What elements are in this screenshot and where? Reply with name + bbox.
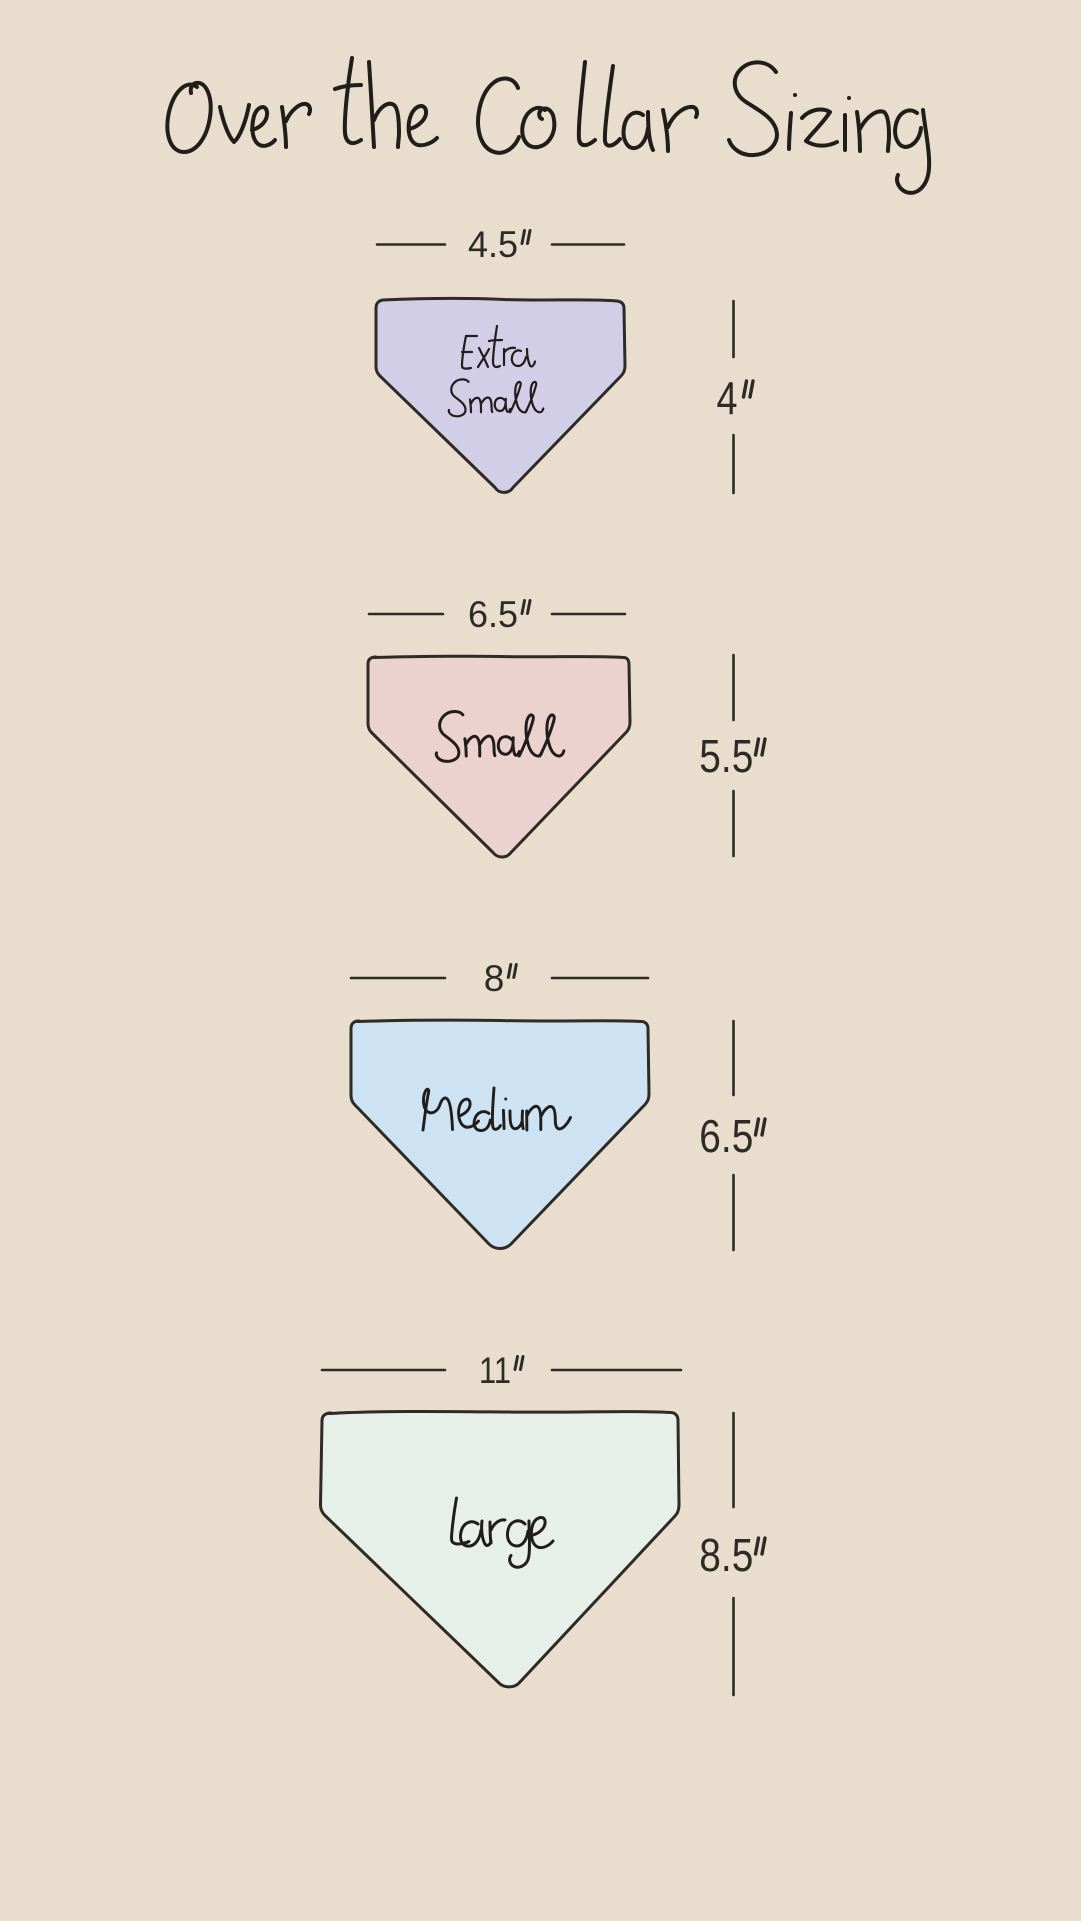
svg-text:6.5: 6.5 — [468, 594, 518, 635]
svg-text:8: 8 — [484, 958, 505, 999]
svg-text:4.5: 4.5 — [468, 224, 518, 265]
svg-text:8.5: 8.5 — [699, 1529, 753, 1581]
svg-text:11: 11 — [479, 1350, 511, 1391]
svg-text:4: 4 — [717, 372, 738, 424]
svg-text:6.5: 6.5 — [699, 1110, 753, 1162]
svg-text:5.5: 5.5 — [699, 730, 753, 782]
